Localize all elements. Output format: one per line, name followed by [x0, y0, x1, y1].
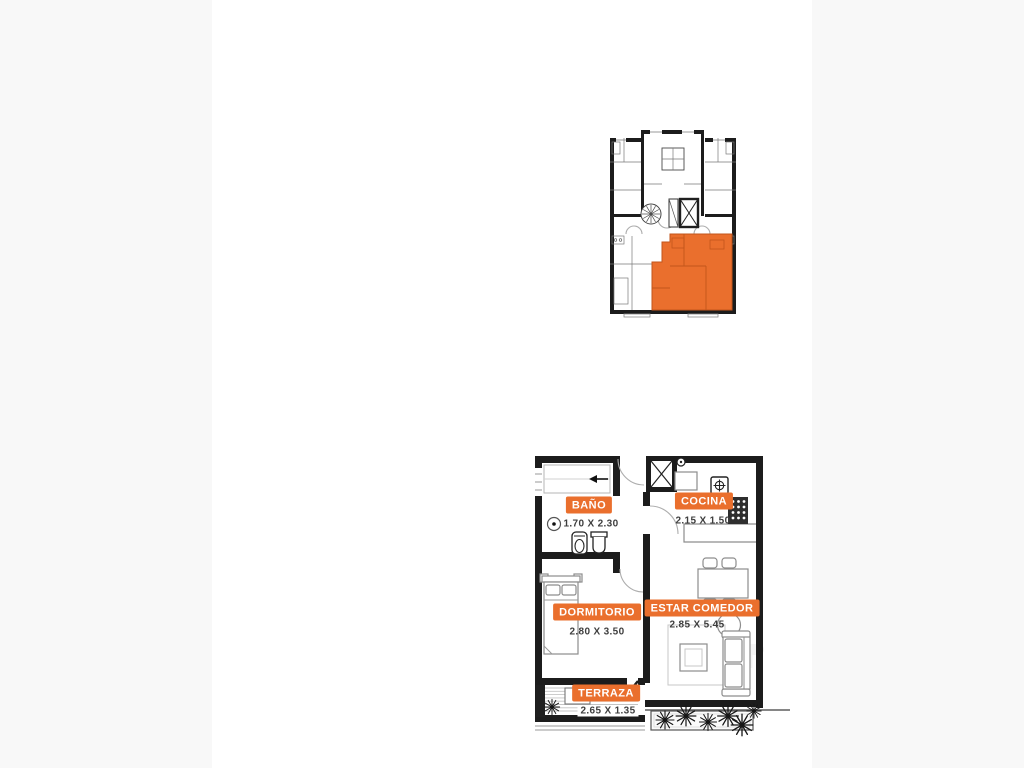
terrace-railing: [535, 726, 645, 730]
room-label-terraza: TERRAZA: [572, 685, 640, 702]
room-label-cocina: COCINA: [675, 493, 733, 510]
room-label-estar-comedor: ESTAR COMEDOR: [645, 600, 760, 617]
room-label-dormitorio: DORMITORIO: [553, 604, 641, 621]
coffee-table-icon: [680, 644, 707, 671]
room-label-bano: BAÑO: [566, 497, 612, 514]
highlighted-unit: [652, 234, 732, 310]
window-icon: [535, 468, 542, 496]
planter-icon: [536, 685, 545, 717]
room-dimension-terraza: 2.65 X 1.35: [577, 706, 638, 717]
room-dimension-estar-comedor: 2.85 X 5.45: [669, 620, 724, 631]
building-key-plan: [606, 128, 740, 320]
bidet-icon: [591, 532, 607, 553]
ceiling-light-icon: [548, 518, 561, 531]
spiral-stair-icon: [641, 204, 661, 224]
electrical-panel-icon: [711, 477, 728, 494]
toilet-icon: [572, 532, 587, 554]
sofa-icon: [722, 631, 750, 696]
room-dimension-bano: 1.70 X 2.30: [563, 519, 618, 530]
apartment-floor-plan: BAÑO 1.70 X 2.30 COCINA 2.15 X 1.50 DORM…: [528, 448, 794, 758]
floorplan-image: BAÑO 1.70 X 2.30 COCINA 2.15 X 1.50 DORM…: [0, 0, 1024, 768]
room-dimension-dormitorio: 2.80 X 3.50: [569, 627, 624, 638]
room-dimension-cocina: 2.15 X 1.50: [675, 516, 730, 527]
elevator-shaft-icon: [669, 199, 698, 227]
keyplan-balconies: [624, 314, 718, 317]
